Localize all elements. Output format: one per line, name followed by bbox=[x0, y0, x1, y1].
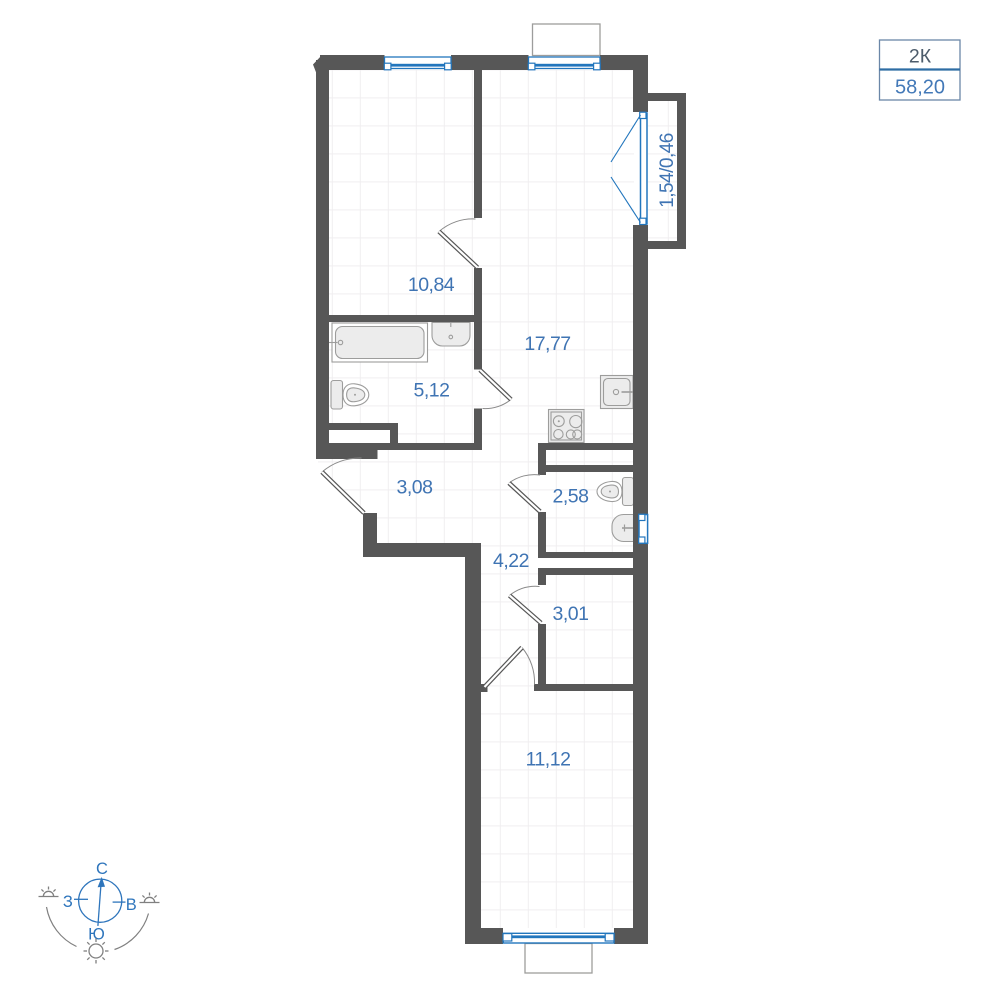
svg-text:З: З bbox=[63, 893, 73, 911]
svg-text:10,84: 10,84 bbox=[408, 274, 455, 296]
svg-text:11,12: 11,12 bbox=[526, 749, 571, 771]
svg-text:2,58: 2,58 bbox=[553, 486, 589, 508]
svg-text:В: В bbox=[126, 896, 137, 914]
svg-text:С: С bbox=[96, 860, 108, 878]
svg-text:1,54/0,46: 1,54/0,46 bbox=[657, 133, 678, 208]
svg-text:58,20: 58,20 bbox=[895, 77, 945, 99]
svg-text:17,77: 17,77 bbox=[524, 333, 570, 355]
svg-text:2К: 2К bbox=[909, 46, 932, 68]
svg-text:3,01: 3,01 bbox=[553, 603, 589, 625]
svg-text:5,12: 5,12 bbox=[414, 380, 450, 402]
svg-text:3,08: 3,08 bbox=[397, 477, 433, 499]
svg-text:4,22: 4,22 bbox=[493, 550, 529, 572]
